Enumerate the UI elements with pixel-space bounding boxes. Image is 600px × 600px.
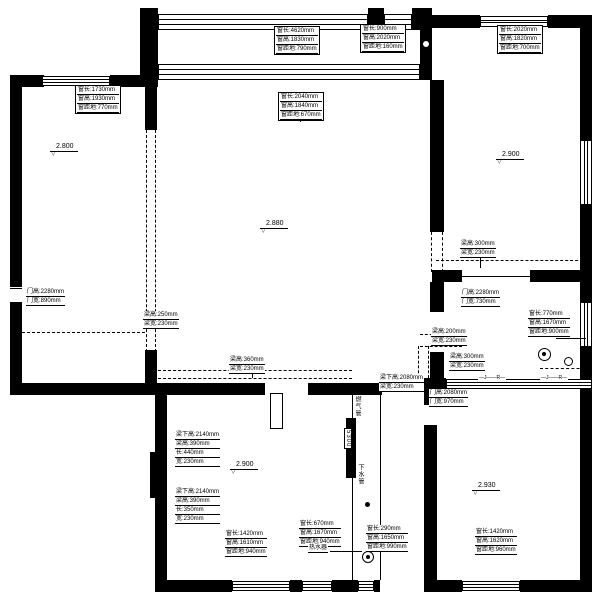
dim-line: 宽:230mm	[175, 515, 220, 524]
beam-dimension-label: 梁下高:2080mm 梁宽:230mm	[379, 374, 424, 392]
beam-dashed-line	[22, 332, 145, 333]
door-opening-line	[462, 276, 530, 277]
door-dimension-label: 门高:2280mm 门宽:730mm	[461, 289, 500, 307]
window-dimension-label: 窗长:1420mm 窗高:1620mm 窗距地:960mm	[475, 528, 517, 555]
pipe-dot	[365, 502, 370, 507]
beam-dashed-line	[540, 368, 590, 369]
dim-line: 窗距地:770mm	[77, 104, 119, 113]
dim-line: 窗距地:670mm	[280, 111, 322, 120]
dim-line: 窗长:2040mm	[280, 93, 322, 102]
dim-line: 窗距地:940mm	[225, 548, 267, 557]
level-triangle-icon: ▽	[231, 469, 236, 475]
beam-dashed-line	[431, 232, 432, 272]
beam-dimension-label: 梁高:200mm 梁宽:230mm	[431, 328, 467, 346]
dim-line: 梁高:200mm	[431, 328, 467, 337]
dim-line: 窗高:1830mm	[276, 36, 318, 45]
window-dimension-label: 窗长:770mm 窗高:1670mm 窗距地:900mm	[528, 310, 570, 337]
wall-segment	[374, 580, 380, 592]
beam-dashed-line	[442, 232, 443, 272]
dim-line: 窗距地:160mm	[362, 43, 404, 52]
dim-line: 梁高:390mm	[175, 440, 220, 449]
wall-segment	[145, 350, 157, 395]
beam-dimension-label: 梁高:300mm 梁宽:230mm	[460, 240, 496, 258]
wall-segment	[308, 383, 352, 395]
dim-line: 梁宽:230mm	[449, 362, 485, 371]
wall-segment	[145, 85, 157, 130]
window	[358, 581, 374, 591]
column-circle-symbol	[422, 40, 430, 48]
window	[580, 302, 592, 347]
dim-line: 窗长:1730mm	[77, 86, 119, 95]
level-mark: 2.930 ▽	[472, 482, 500, 496]
dim-line: 窗长:670mm	[299, 520, 341, 529]
wall-segment	[430, 282, 444, 312]
wall-segment	[424, 426, 437, 592]
open-door-leaf	[270, 393, 283, 429]
wall-segment	[437, 580, 462, 592]
dim-line: 门高:2280mm	[26, 288, 65, 297]
dim-line: 窗高:1610mm	[225, 539, 267, 548]
dim-line: 门高:2280mm	[461, 289, 500, 298]
window-dimension-label: 窗长:2040mm 窗高:1840mm 窗距地:670mm	[278, 92, 324, 121]
window-dimension-label: 窗长:1420mm 窗高:1610mm 窗距地:940mm	[225, 530, 267, 557]
drain-dot	[542, 352, 546, 356]
dim-line: 窗高:1930mm	[77, 95, 119, 104]
dim-line: 梁宽:230mm	[460, 249, 496, 258]
dim-line: 梁下高:2080mm	[379, 374, 424, 383]
dim-line: 窗长:770mm	[528, 310, 570, 319]
door-dimension-label: 门高:2080mm 门宽:970mm	[429, 389, 468, 407]
wall-segment	[10, 303, 22, 395]
wall-segment	[530, 270, 592, 282]
dim-line: 窗长:900mm	[362, 25, 404, 34]
dim-line: 梁高:300mm	[460, 240, 496, 249]
wall-segment	[430, 80, 444, 232]
window-partition	[446, 379, 592, 389]
fixture-circle	[564, 357, 573, 366]
dim-line: 窗距地:700mm	[499, 44, 541, 53]
dim-line: 窗高:2020mm	[362, 34, 404, 43]
beam-dashed-line	[428, 346, 429, 383]
dim-line: 窗高:1650mm	[366, 534, 408, 543]
window-dimension-label: 窗长:2020mm 窗高:1820mm 窗距地:700mm	[497, 25, 543, 54]
dim-line: 门宽:970mm	[429, 398, 468, 407]
level-triangle-icon: ▽	[261, 228, 266, 234]
dim-line: 窗高:1820mm	[499, 35, 541, 44]
dim-line: 窗距地:900mm	[528, 328, 570, 337]
window-dimension-label: 窗长:1730mm 窗高:1930mm 窗距地:770mm	[75, 85, 121, 114]
window	[158, 14, 368, 30]
door-dimension-label: 门高:2280mm 门宽:890mm	[26, 288, 65, 306]
dim-line: 梁宽:230mm	[379, 383, 424, 392]
wall-column	[150, 452, 166, 498]
radiator-tag: —J——R—	[540, 376, 568, 381]
wall-segment	[580, 282, 592, 302]
wall-segment	[10, 75, 22, 287]
beam-column-dimension-label: 梁下高:2140mm 梁高:390mm 长:350mm 宽:230mm	[175, 488, 220, 524]
dim-line: 窗高:1670mm	[299, 529, 341, 538]
wall-segment	[432, 15, 480, 28]
wall-segment	[352, 383, 382, 395]
wall-segment	[155, 580, 232, 592]
level-triangle-icon: ▽	[473, 490, 478, 496]
level-mark: 2.880 ▽	[260, 220, 288, 234]
dim-line: 窗距地:960mm	[475, 546, 517, 555]
dim-line: 窗长:1420mm	[475, 528, 517, 537]
wall-segment	[520, 580, 592, 592]
dim-line: 窗高:1670mm	[528, 319, 570, 328]
wall-segment	[580, 390, 592, 580]
level-triangle-icon: ▽	[51, 151, 56, 157]
drain-pipe-label: 下水管	[357, 464, 363, 485]
window	[580, 140, 592, 205]
dim-line: 长:350mm	[175, 506, 220, 515]
beam-dimension-label: 梁高:250mm 梁宽:230mm	[143, 311, 179, 329]
door-jamb-line	[10, 302, 22, 303]
dim-line: 梁宽:230mm	[143, 320, 179, 329]
wall-segment	[290, 580, 302, 592]
dim-line: 窗长:2020mm	[499, 26, 541, 35]
window	[302, 581, 332, 591]
dim-line: 窗距地:790mm	[276, 45, 318, 54]
dim-line: 窗高:1620mm	[475, 537, 517, 546]
wall-segment	[432, 270, 462, 282]
window	[232, 581, 290, 591]
dim-line: 梁高:390mm	[175, 497, 220, 506]
dim-line: 门宽:890mm	[26, 297, 65, 306]
beam-dashed-line	[158, 378, 352, 379]
water-heater-label: 热水器	[308, 544, 328, 553]
window-dimension-label: 窗长:290mm 窗高:1650mm 窗距地:990mm	[366, 525, 408, 552]
dim-line: 梁下高:2140mm	[175, 488, 220, 497]
shaft-dimension-label: 5300	[344, 428, 352, 449]
dim-line: 宽:230mm	[175, 458, 220, 467]
dim-line: 门高:2080mm	[429, 389, 468, 398]
window-dimension-label: 窗长:900mm 窗高:2020mm 窗距地:160mm	[360, 24, 406, 53]
leader-line	[556, 338, 586, 339]
dim-line: 梁高:300mm	[449, 353, 485, 362]
floor-plan: 2.800 ▽ 2.880 ▽ 2.900 ▽ 2.900 ▽ 2.930 ▽ …	[0, 0, 600, 600]
level-mark: 2.800 ▽	[50, 143, 78, 157]
wall-segment	[10, 383, 158, 395]
dim-line: 窗长:1420mm	[225, 530, 267, 539]
drain-dot	[366, 555, 370, 559]
dim-line: 梁宽:230mm	[431, 337, 467, 346]
dim-line: 梁下高:2140mm	[175, 431, 220, 440]
wall-segment	[580, 15, 592, 140]
beam-dashed-line	[436, 260, 588, 261]
dim-line: 窗长:4620mm	[276, 27, 318, 36]
level-mark: 2.900 ▽	[230, 461, 258, 475]
beam-column-dimension-label: 梁下高:2140mm 梁高:390mm 长:440mm 宽:230mm	[175, 431, 220, 467]
beam-dimension-label: 梁高:300mm 梁宽:230mm	[449, 353, 485, 371]
door-jamb-line	[424, 425, 437, 426]
dim-line: 门宽:730mm	[461, 298, 500, 307]
dim-line: 梁宽:230mm	[229, 365, 265, 374]
level-triangle-icon: ▽	[497, 159, 502, 165]
window	[158, 64, 420, 80]
beam-dimension-label: 梁高:360mm 梁宽:230mm	[229, 356, 265, 374]
wall-segment	[332, 580, 352, 592]
label-text: 热水器	[308, 544, 328, 553]
dim-line: 长:440mm	[175, 449, 220, 458]
radiator-tag: —J——R—	[478, 376, 506, 381]
wall-segment	[158, 383, 265, 395]
gas-pipe-label: 燃气管	[354, 396, 360, 417]
dim-line: 窗距地:990mm	[366, 543, 408, 552]
leader-line	[330, 551, 362, 552]
window	[462, 581, 520, 591]
door-jamb-line	[10, 288, 22, 289]
dim-line: 梁高:250mm	[143, 311, 179, 320]
window-dimension-label: 窗长:4620mm 窗高:1830mm 窗距地:790mm	[274, 26, 320, 55]
dim-line: 窗高:1840mm	[280, 102, 322, 111]
level-mark: 2.900 ▽	[496, 151, 524, 165]
dim-line: 窗长:290mm	[366, 525, 408, 534]
dim-line: 梁高:360mm	[229, 356, 265, 365]
